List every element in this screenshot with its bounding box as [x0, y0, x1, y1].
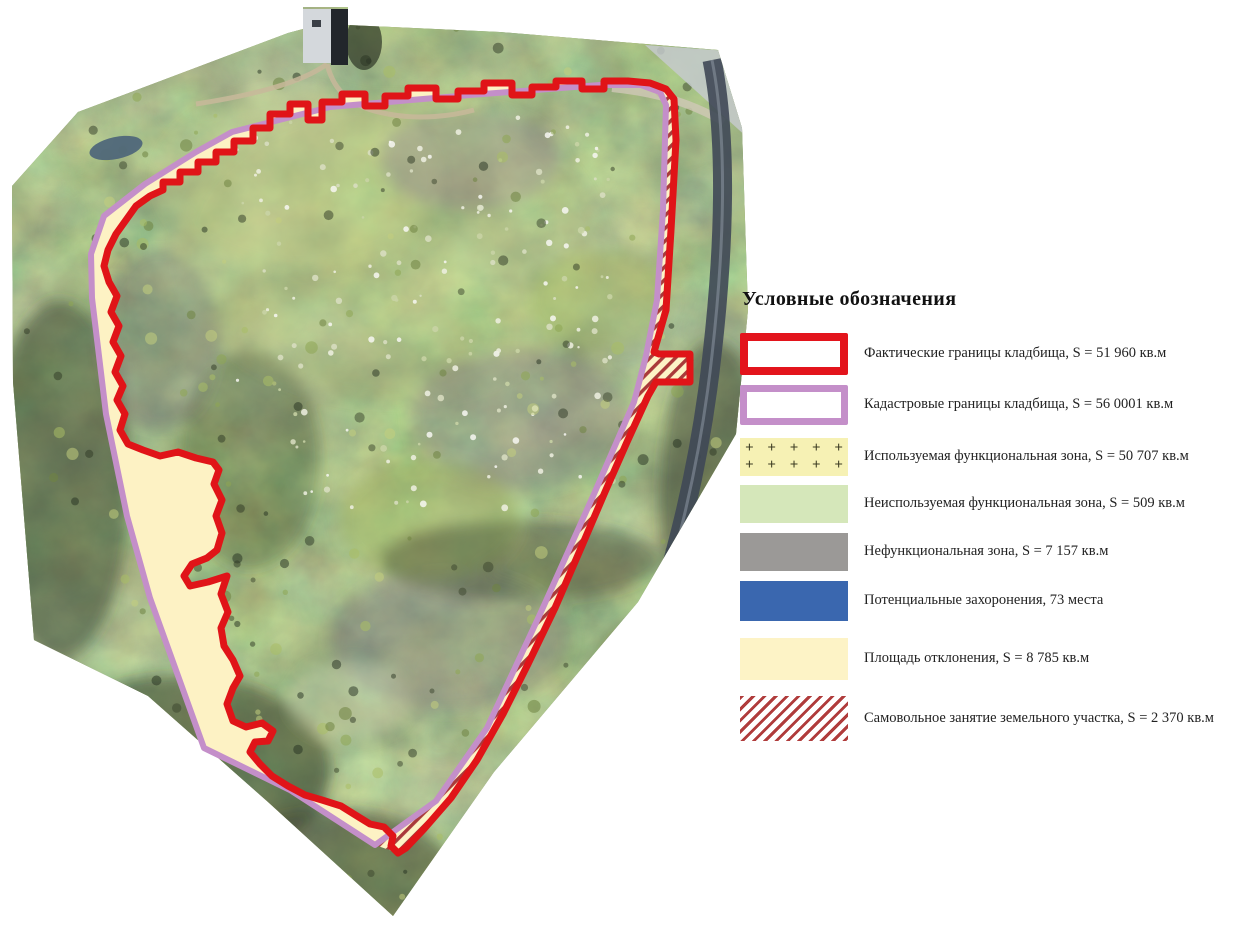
legend-item-label: Самовольное занятие земельного участка, … [864, 710, 1214, 727]
building [303, 9, 382, 70]
legend-item-deviation-area: Площадь отклонения, S = 8 785 кв.м [740, 638, 1245, 680]
legend-item-label: Используемая функциональная зона, S = 50… [864, 448, 1189, 465]
legend: Условные обозначения Фактические границы… [740, 288, 1245, 751]
legend-item-unused-functional-zone: Неиспользуемая функциональная зона, S = … [740, 485, 1245, 523]
legend-swatch-blue-fill [740, 581, 848, 621]
legend-item-unauthorized-occupation: Самовольное занятие земельного участка, … [740, 696, 1245, 741]
legend-item-label: Нефункциональная зона, S = 7 157 кв.м [864, 543, 1108, 560]
legend-swatch-purple-outline [740, 385, 848, 425]
legend-item-label: Потенциальные захоронения, 73 места [864, 592, 1103, 609]
legend-swatch-gray-fill [740, 533, 848, 571]
legend-item-cadastral-boundary: Кадастровые границы кладбища, S = 56 000… [740, 385, 1245, 425]
legend-item-actual-boundary: Фактические границы кладбища, S = 51 960… [740, 333, 1245, 375]
legend-item-label: Фактические границы кладбища, S = 51 960… [864, 345, 1166, 362]
legend-item-nonfunctional-zone: Нефункциональная зона, S = 7 157 кв.м [740, 533, 1245, 571]
legend-item-label: Площадь отклонения, S = 8 785 кв.м [864, 650, 1089, 667]
legend-item-label: Неиспользуемая функциональная зона, S = … [864, 495, 1185, 512]
legend-swatch-green-fill [740, 485, 848, 523]
aerial-map [0, 0, 760, 926]
legend-title: Условные обозначения [742, 288, 1245, 311]
cemetery-map-figure: Условные обозначения Фактические границы… [0, 0, 1247, 926]
legend-swatch-yellow-fill [740, 638, 848, 680]
legend-swatch-plus-pattern [740, 438, 848, 476]
legend-item-used-functional-zone: Используемая функциональная зона, S = 50… [740, 438, 1245, 476]
legend-item-label: Кадастровые границы кладбища, S = 56 000… [864, 396, 1173, 413]
legend-swatch-red-hatch [740, 696, 848, 741]
legend-item-potential-burials: Потенциальные захоронения, 73 места [740, 581, 1245, 621]
legend-swatch-red-outline [740, 333, 848, 375]
